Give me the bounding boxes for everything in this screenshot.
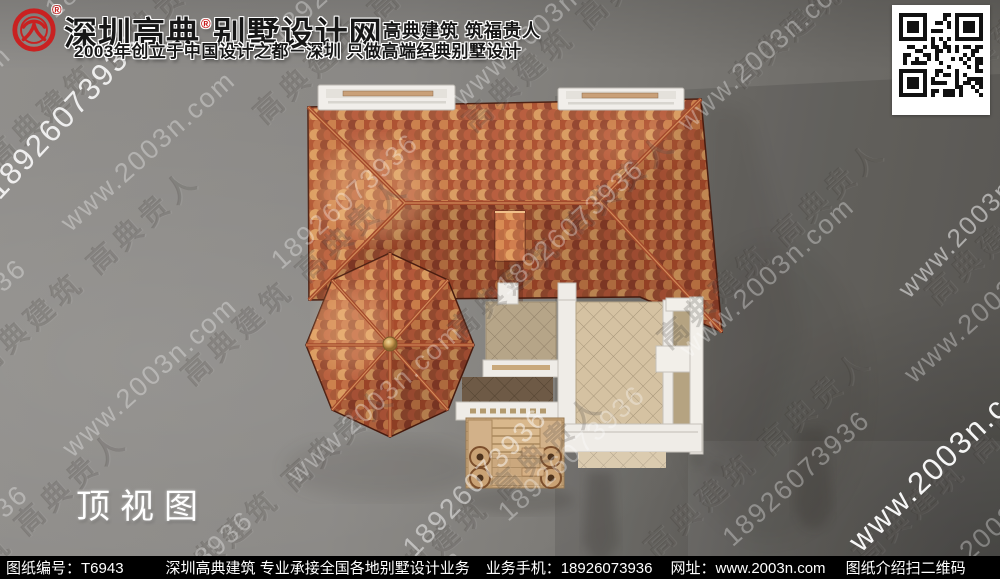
page: 高典建筑 高典贵人 高典建筑 高典贵人 高典建筑 高典贵人 高典建筑 高典贵人 … xyxy=(0,0,1000,579)
business-phone: 业务手机：18926073936 xyxy=(486,557,653,578)
company-service-line: 深圳高典建筑 专业承接全国各地别墅设计业务 xyxy=(166,557,470,578)
title-registered-mark: ® xyxy=(201,16,212,31)
website: 网址：www.2003n.com xyxy=(671,557,826,578)
qr-code xyxy=(892,5,990,115)
view-label: 顶视图 xyxy=(76,479,208,528)
brand-subtitle: 2003年创立于中国设计之都－深圳 只做高端经典别墅设计 xyxy=(74,37,522,62)
qr-hint: 图纸介绍扫二维码 xyxy=(846,557,966,578)
turret-roof xyxy=(306,253,474,437)
company-logo-icon xyxy=(10,6,58,54)
header: ® 深圳高典®别墅设计网 高典建筑 筑福贵人 2003年创立于中国设计之都－深圳… xyxy=(0,0,900,62)
entrance-porch xyxy=(466,418,564,488)
roof-vent-1 xyxy=(318,85,455,110)
qr-code-pattern xyxy=(899,13,983,97)
drawing-number: 图纸编号：T6943 xyxy=(6,557,124,578)
footer-bar: 图纸编号：T6943 深圳高典建筑 专业承接全国各地别墅设计业务 业务手机：18… xyxy=(0,556,1000,579)
logo-registered-mark: ® xyxy=(52,2,62,17)
large-terrace xyxy=(558,297,703,468)
roof-vent-2 xyxy=(558,88,684,110)
turret-finial xyxy=(383,337,397,351)
